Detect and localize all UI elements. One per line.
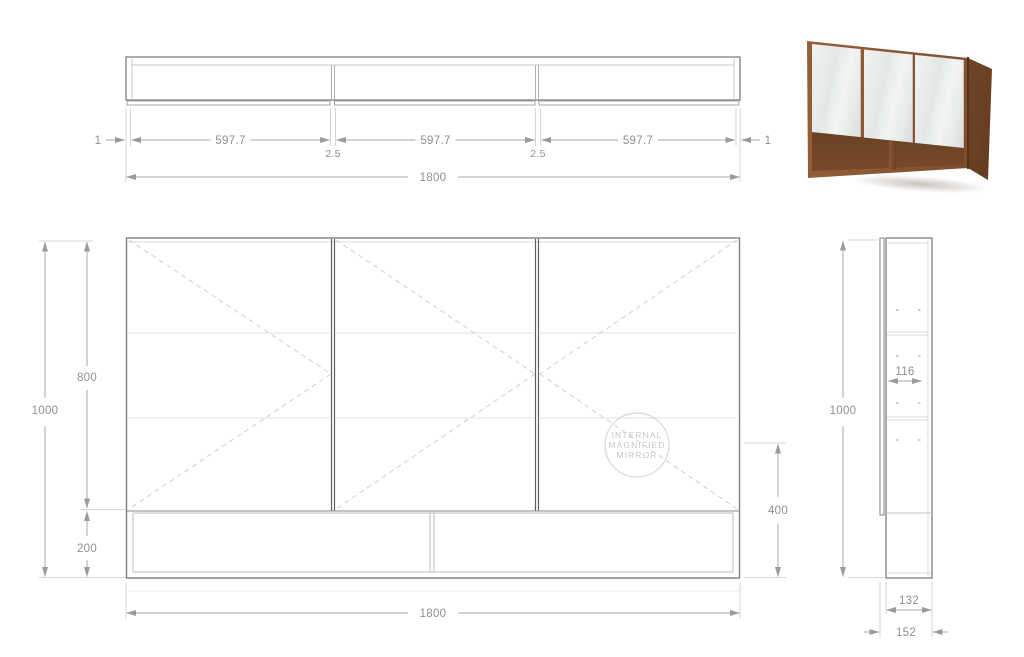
dim-front-door-height: 800: [77, 372, 97, 384]
photo-shadow: [850, 171, 990, 197]
dim-top-edge-left: 1: [95, 135, 102, 147]
side-view: [880, 238, 932, 578]
dim-top-door-2: 597.7: [420, 135, 450, 147]
photo-mirror-door-right: [915, 55, 964, 148]
dim-front-shelf-height: 200: [77, 543, 97, 555]
front-view: INTERNAL MAGNIFIED MIRROR: [127, 238, 740, 591]
dim-front-niche-height: 400: [768, 505, 788, 517]
photo-mirror-doors: [812, 44, 964, 148]
drawing-sheet: 1 597.7 597.7 597.7 2.5 2.5 1 1800: [0, 0, 1024, 657]
internal-mirror-stamp: INTERNAL MAGNIFIED MIRROR: [605, 413, 669, 477]
dim-side-height: 1000: [830, 405, 857, 417]
dim-top-gap-2: 2.5: [530, 148, 546, 160]
dim-top-gap-1: 2.5: [325, 148, 341, 160]
front-view-dimensions: [39, 241, 786, 619]
photo-shelf-divider: [889, 139, 896, 170]
front-view-dim-labels: 1000 800 200 400 1800: [32, 372, 788, 620]
dim-front-total-width: 1800: [420, 608, 447, 620]
stamp-line-3: MIRROR: [616, 450, 657, 460]
dim-side-internal-depth: 116: [895, 366, 914, 378]
dim-side-cabinet-depth: 132: [899, 595, 919, 607]
photo-front-side-seam: [967, 57, 969, 169]
dim-top-door-1: 597.7: [215, 135, 245, 147]
dim-top-edge-right: 1: [765, 135, 772, 147]
photo-mirror-door-middle: [864, 49, 913, 142]
dim-side-total-depth: 152: [896, 627, 916, 639]
dim-top-total-width: 1800: [420, 172, 447, 184]
top-view: [126, 57, 740, 105]
stamp-line-2: MAGNIFIED: [608, 440, 665, 450]
dim-front-total-height: 1000: [32, 405, 59, 417]
stamp-line-1: INTERNAL: [612, 430, 663, 440]
product-photo: [795, 18, 1005, 196]
dim-top-door-3: 597.7: [623, 135, 653, 147]
photo-mirror-door-left: [812, 44, 861, 137]
